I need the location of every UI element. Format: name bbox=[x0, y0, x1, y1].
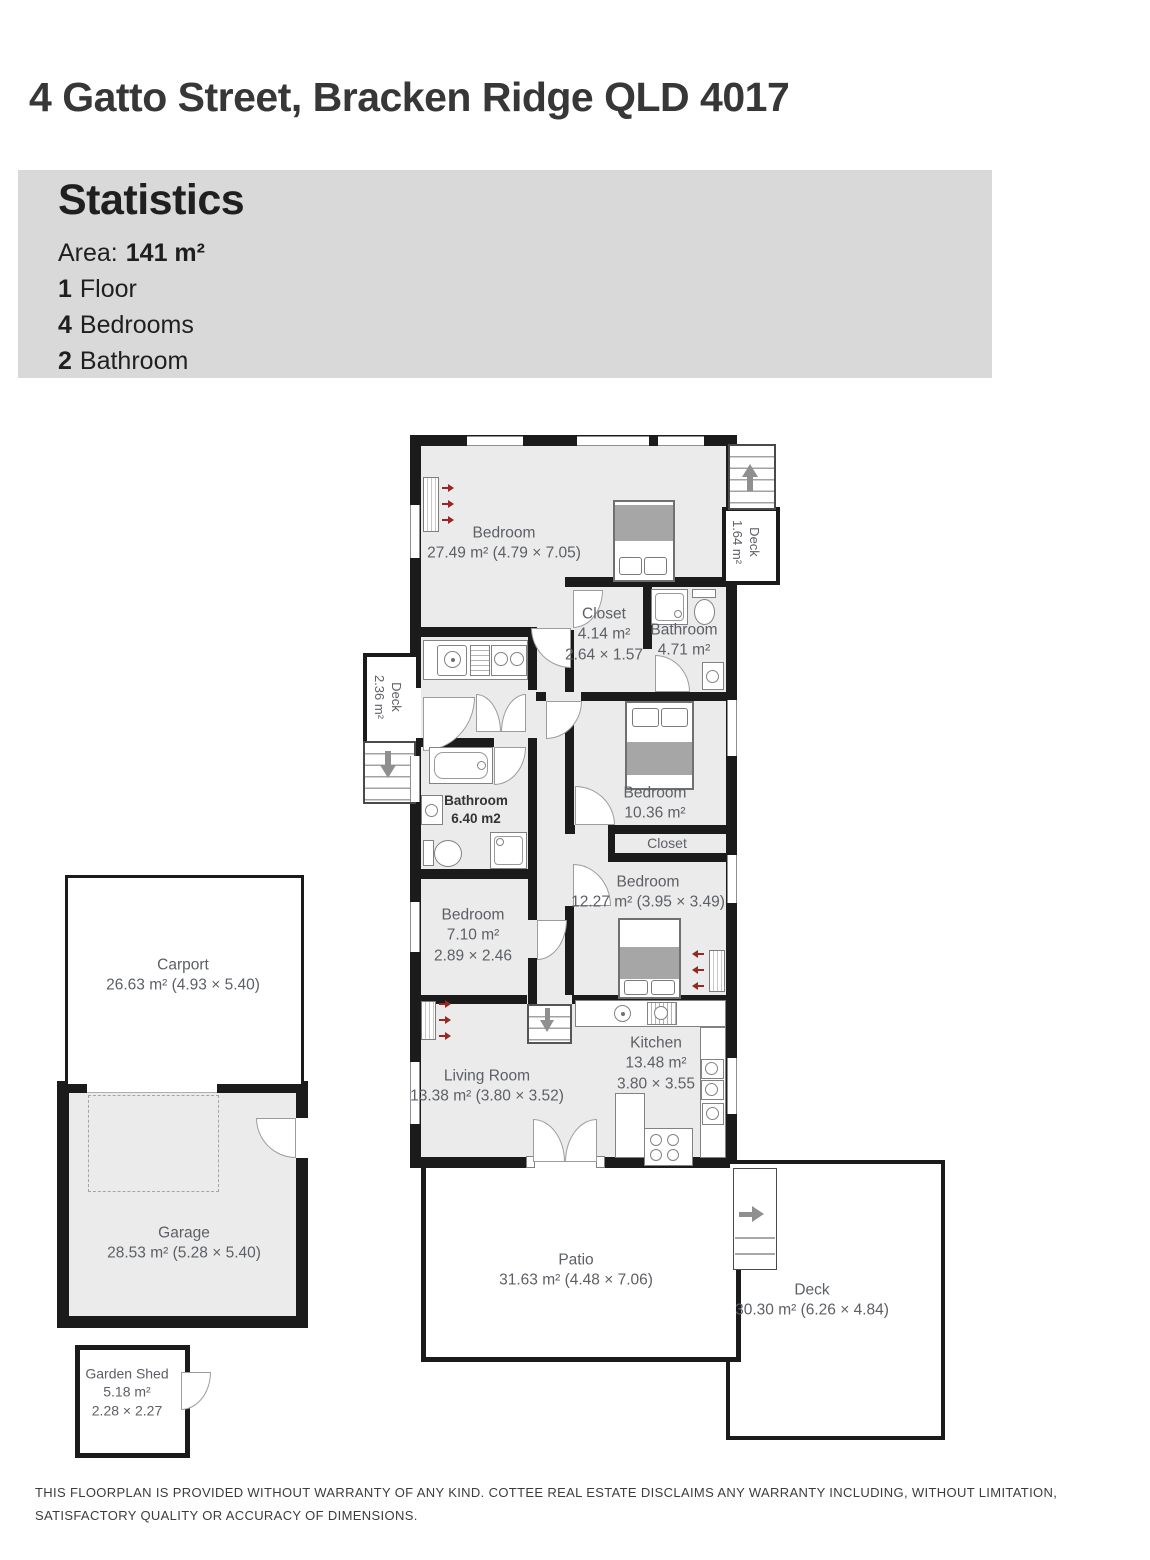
shed-door-opening bbox=[173, 1374, 181, 1410]
window bbox=[577, 436, 649, 446]
window bbox=[727, 855, 737, 903]
window bbox=[467, 436, 523, 446]
toilet-icon bbox=[423, 840, 434, 866]
toilet-tank bbox=[692, 589, 716, 598]
door-post bbox=[596, 1156, 605, 1168]
sink-bowl bbox=[705, 1062, 718, 1075]
bed-blanket bbox=[627, 742, 692, 775]
label-bathroom-main: Bathroom6.40 m2 bbox=[444, 792, 508, 828]
sink-dot bbox=[621, 1012, 625, 1016]
shower-drain bbox=[674, 610, 682, 618]
bathtub-drain bbox=[477, 761, 486, 770]
label-deck-top: Deck1.64 m² bbox=[729, 520, 763, 564]
label-carport: Carport26.63 m² (4.93 × 5.40) bbox=[106, 956, 260, 997]
label-deck-left: Deck2.36 m² bbox=[371, 675, 405, 719]
label-bathroom-ensuite: Bathroom4.71 m² bbox=[650, 621, 717, 662]
label-patio: Patio31.63 m² (4.48 × 7.06) bbox=[499, 1251, 653, 1292]
label-closet-hall: Closet bbox=[647, 834, 687, 852]
wall-segment bbox=[536, 692, 546, 701]
label-bedroom-small: Bedroom7.10 m²2.89 × 2.46 bbox=[434, 905, 512, 966]
stairs-up-arrow-icon bbox=[742, 464, 758, 477]
wall-segment bbox=[608, 853, 726, 862]
stairs-up-arrow-icon bbox=[747, 477, 753, 491]
stat-bedrooms: 4Bedrooms bbox=[58, 307, 992, 343]
garage-door-opening bbox=[87, 1081, 217, 1093]
double-bed-icon bbox=[625, 701, 694, 790]
walkway-arrow-icon bbox=[739, 1212, 752, 1217]
sink-bowl bbox=[654, 1006, 668, 1020]
bed-blanket bbox=[615, 505, 673, 541]
statistics-panel: Statistics Area:141 m² 1Floor 4Bedrooms … bbox=[18, 170, 992, 378]
sink-bowl bbox=[494, 652, 508, 666]
kitchen-island bbox=[615, 1093, 645, 1158]
wall-segment bbox=[565, 825, 575, 834]
wall-segment bbox=[421, 869, 537, 879]
label-closet-ensuite: Closet4.14 m²2.64 × 1.57 bbox=[565, 604, 643, 665]
heater-airflow-icon bbox=[441, 482, 455, 526]
heater-airflow-icon bbox=[438, 998, 452, 1042]
wall-segment bbox=[528, 958, 537, 1004]
window bbox=[727, 700, 737, 756]
window bbox=[410, 902, 420, 952]
pillow bbox=[661, 708, 688, 727]
pillow bbox=[632, 708, 659, 727]
garage-side-door-opening bbox=[296, 1118, 308, 1158]
label-bedroom-right: Bedroom12.27 m² (3.95 × 3.49) bbox=[571, 873, 725, 914]
burner bbox=[650, 1134, 662, 1146]
heater-airflow-icon bbox=[691, 948, 705, 992]
heater-icon bbox=[421, 1001, 436, 1040]
walkway-tread bbox=[735, 1253, 775, 1255]
stat-area: Area:141 m² bbox=[58, 235, 992, 271]
wall-segment bbox=[421, 995, 527, 1004]
stairs-down-arrow-icon bbox=[380, 765, 396, 778]
stove-icon bbox=[644, 1128, 693, 1166]
deck-door-opening bbox=[410, 688, 421, 738]
stairs-down-arrow-icon bbox=[540, 1020, 554, 1032]
pillow bbox=[619, 557, 642, 575]
walkway-tread bbox=[735, 1237, 775, 1239]
drainboard-icon bbox=[470, 645, 490, 676]
sink-bowl bbox=[425, 804, 438, 817]
label-garage: Garage28.53 m² (5.28 × 5.40) bbox=[107, 1224, 261, 1265]
stat-floors: 1Floor bbox=[58, 271, 992, 307]
bed-blanket bbox=[620, 947, 679, 979]
dishwasher-dial bbox=[706, 1107, 719, 1120]
wall-segment bbox=[421, 627, 528, 637]
label-kitchen: Kitchen13.48 m²3.80 × 3.55 bbox=[617, 1033, 695, 1094]
burner bbox=[667, 1149, 679, 1161]
shed-door-arc bbox=[181, 1372, 211, 1410]
window bbox=[658, 436, 704, 446]
page-title: 4 Gatto Street, Bracken Ridge QLD 4017 bbox=[29, 74, 789, 121]
wall-segment bbox=[581, 692, 726, 701]
disclaimer: THIS FLOORPLAN IS PROVIDED WITHOUT WARRA… bbox=[35, 1482, 1057, 1527]
wall-segment bbox=[528, 738, 537, 920]
double-bed-icon bbox=[613, 500, 675, 582]
shower-icon bbox=[490, 832, 527, 869]
double-bed-icon bbox=[618, 918, 681, 999]
sink-bowl bbox=[705, 1083, 718, 1096]
label-bedroom-main: Bedroom27.49 m² (4.79 × 7.05) bbox=[427, 524, 581, 565]
heater-icon bbox=[709, 950, 725, 992]
label-bedroom-mid: Bedroom10.36 m² bbox=[624, 784, 687, 825]
stairs-down-arrow-icon bbox=[545, 1008, 550, 1020]
burner bbox=[650, 1149, 662, 1161]
burner bbox=[667, 1134, 679, 1146]
wall-segment bbox=[615, 825, 726, 834]
label-deck-bottom: Deck30.30 m² (6.26 × 4.84) bbox=[735, 1281, 889, 1322]
pillow bbox=[624, 980, 648, 995]
garage-door-swing bbox=[88, 1095, 219, 1192]
shower-drain bbox=[496, 838, 504, 846]
toilet-bowl bbox=[434, 840, 462, 867]
pillow bbox=[644, 557, 667, 575]
walkway-arrow-icon bbox=[752, 1206, 764, 1222]
statistics-heading: Statistics bbox=[58, 176, 992, 225]
pillow bbox=[651, 980, 675, 995]
window bbox=[410, 505, 420, 558]
stat-bathrooms: 2Bathroom bbox=[58, 343, 992, 379]
label-garden-shed: Garden Shed5.18 m²2.28 × 2.27 bbox=[85, 1364, 168, 1419]
label-living-room: Living Room13.38 m² (3.80 × 3.52) bbox=[410, 1067, 564, 1108]
window bbox=[727, 1058, 737, 1114]
stairs-down-arrow-icon bbox=[385, 751, 391, 765]
window bbox=[410, 756, 420, 802]
washer-dot bbox=[451, 658, 455, 662]
floorplan-page: 4 Gatto Street, Bracken Ridge QLD 4017 S… bbox=[0, 0, 1150, 1560]
sink-bowl bbox=[706, 670, 719, 683]
sink-bowl bbox=[510, 652, 524, 666]
